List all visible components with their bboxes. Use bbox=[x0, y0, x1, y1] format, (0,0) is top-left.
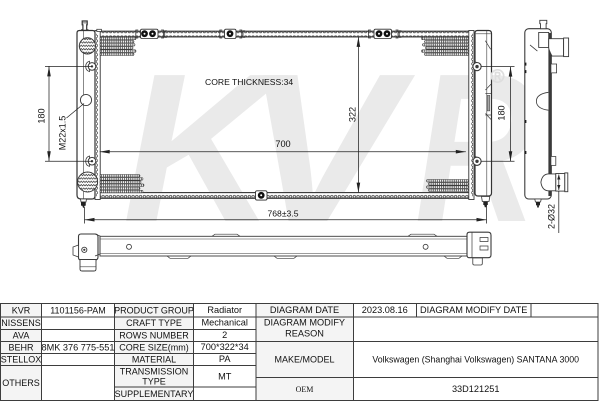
svg-text:180: 180 bbox=[36, 108, 46, 123]
svg-text:PRODUCT GROUP: PRODUCT GROUP bbox=[114, 306, 194, 316]
svg-text:STELLOX: STELLOX bbox=[1, 355, 42, 365]
svg-text:KVR: KVR bbox=[12, 306, 31, 316]
svg-text:322: 322 bbox=[348, 107, 358, 122]
svg-text:BEHR: BEHR bbox=[8, 343, 34, 353]
svg-text:OTHERS: OTHERS bbox=[2, 378, 40, 388]
svg-text:SUPPLEMENTARY: SUPPLEMENTARY bbox=[115, 389, 194, 399]
svg-text:MT: MT bbox=[218, 372, 232, 382]
svg-text:CORE THICKNESS:34: CORE THICKNESS:34 bbox=[205, 77, 293, 87]
svg-text:2023.08.16: 2023.08.16 bbox=[362, 305, 408, 315]
svg-text:700*322*34: 700*322*34 bbox=[201, 342, 249, 352]
svg-text:OEM: OEM bbox=[296, 385, 314, 394]
svg-text:700: 700 bbox=[275, 139, 290, 149]
svg-text:REASON: REASON bbox=[285, 329, 324, 339]
svg-text:AVA: AVA bbox=[13, 331, 30, 341]
svg-text:M22x1.5: M22x1.5 bbox=[58, 116, 68, 151]
svg-text:NISSENS: NISSENS bbox=[1, 318, 41, 328]
svg-text:DIAGRAM DATE: DIAGRAM DATE bbox=[270, 305, 339, 315]
svg-text:Mechanical: Mechanical bbox=[201, 318, 247, 328]
svg-text:TRANSMISSION: TRANSMISSION bbox=[120, 367, 189, 377]
svg-text:Volkswagen (Shanghai Volkswage: Volkswagen (Shanghai Volkswagen) SANTANA… bbox=[372, 355, 579, 365]
svg-text:8MK 376 775-551: 8MK 376 775-551 bbox=[41, 343, 114, 353]
svg-text:180: 180 bbox=[497, 105, 507, 120]
svg-text:1101156-PAM: 1101156-PAM bbox=[50, 306, 106, 316]
svg-text:Radiator: Radiator bbox=[207, 305, 242, 315]
svg-text:768±3.5: 768±3.5 bbox=[267, 209, 298, 219]
svg-text:MAKE/MODEL: MAKE/MODEL bbox=[274, 355, 334, 365]
svg-text:2-Ø32: 2-Ø32 bbox=[546, 204, 556, 229]
svg-text:ROWS NUMBER: ROWS NUMBER bbox=[119, 331, 189, 341]
svg-text:2: 2 bbox=[222, 330, 227, 340]
svg-text:DIAGRAM MODIFY: DIAGRAM MODIFY bbox=[264, 318, 345, 328]
svg-text:TYPE: TYPE bbox=[142, 377, 166, 387]
svg-text:CORE SIZE(mm): CORE SIZE(mm) bbox=[119, 343, 189, 353]
svg-text:DIAGRAM MODIFY DATE: DIAGRAM MODIFY DATE bbox=[420, 305, 527, 315]
svg-text:33D121251: 33D121251 bbox=[452, 384, 500, 394]
svg-text:MATERIAL: MATERIAL bbox=[132, 355, 176, 365]
svg-text:PA: PA bbox=[219, 354, 231, 364]
svg-text:CRAFT TYPE: CRAFT TYPE bbox=[126, 318, 182, 328]
